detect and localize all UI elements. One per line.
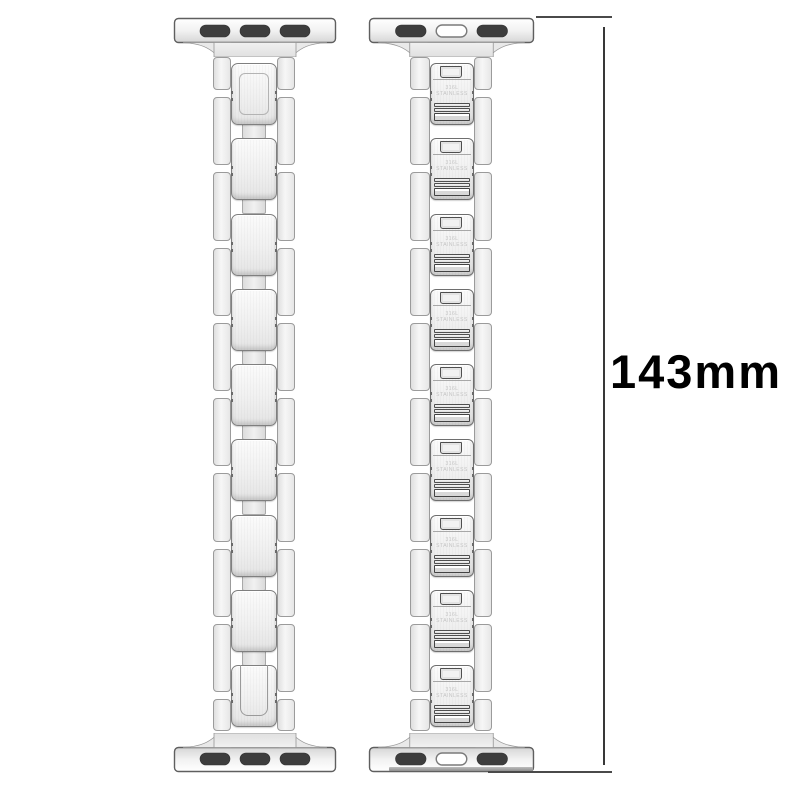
outer-link-right [277,699,295,731]
clasp-bar [434,715,470,723]
clasp-bar [434,484,470,488]
engraving-text: 316LSTAINLESS [431,612,473,624]
clasp-fold-line [433,606,471,607]
outer-link-left [213,549,231,617]
outer-link-right [474,398,492,466]
measurement-tick-top [536,16,612,18]
engraving-line-2: STAINLESS [431,693,473,699]
outer-link-left [213,473,231,542]
clasp-bar [434,409,470,413]
center-link-plate [231,515,277,577]
outer-link-right [474,549,492,617]
clasp-tab [440,141,462,153]
clasp-bar [434,254,470,258]
center-link-connector [242,575,266,591]
outer-link-right [277,323,295,391]
adapter-slot [240,753,270,765]
outer-link-right [277,549,295,617]
clasp-link-plate: 316LSTAINLESS [430,138,474,200]
clasp-tab [440,367,462,379]
clasp-bar [434,640,470,648]
engraving-line-2: STAINLESS [431,543,473,549]
adapter-slot [395,25,426,37]
engraving-text: 316LSTAINLESS [431,461,473,473]
center-link-plate [231,214,277,276]
adapter-slot [200,25,230,37]
engraving-line-2: STAINLESS [431,166,473,172]
clasp-fold-line [433,380,471,381]
outer-link-right [277,57,295,90]
engraving-text: 316LSTAINLESS [431,687,473,699]
outer-link-left [213,624,231,692]
center-link-connector [242,198,266,214]
clasp-bar [434,710,470,714]
outer-link-left [410,248,430,316]
clasp-bars [434,178,470,196]
clasp-link-plate: 316LSTAINLESS [430,364,474,426]
outer-link-left [410,97,430,165]
adapter-slot-open [436,753,467,765]
measurement-vertical-line [603,27,605,765]
outer-link-right [474,323,492,391]
outer-link-right [474,97,492,165]
center-link-plate [231,665,277,727]
outer-link-left [410,172,430,241]
center-link-connector [242,424,266,440]
clasp-fold-line [433,681,471,682]
engraving-text: 316LSTAINLESS [431,386,473,398]
center-link-connector [242,274,266,290]
clasp-link-plate: 316LSTAINLESS [430,214,474,276]
measurement-tick-bottom [488,771,612,773]
clasp-bar [434,334,470,338]
outer-link-right [277,624,295,692]
outer-link-left [410,323,430,391]
lug-adapter-graphic [173,733,337,773]
clasp-link-plate: 316LSTAINLESS [430,439,474,501]
outer-link-left [213,57,231,90]
clasp-bar [434,555,470,559]
clasp-bars [434,630,470,648]
watch-band-front-view [173,17,337,777]
center-link-plate [231,439,277,501]
dimension-label: 143mm [610,344,782,399]
clasp-bar [434,560,470,564]
clasp-link-plate: 316LSTAINLESS [430,515,474,577]
clasp-fold-line [433,79,471,80]
clasp-bar [434,339,470,347]
watch-adapter-bottom [173,733,337,773]
outer-link-right [474,473,492,542]
clasp-link-plate: 316LSTAINLESS [430,63,474,125]
clasp-bars [434,254,470,272]
engraving-text: 316LSTAINLESS [431,311,473,323]
center-link-connector [242,123,266,139]
engraving-line-2: STAINLESS [431,467,473,473]
outer-link-right [277,248,295,316]
clasp-bar [434,635,470,639]
outer-link-left [213,172,231,241]
adapter-slot [280,753,310,765]
outer-link-left [410,57,430,90]
clasp-bar [434,259,470,263]
outer-link-left [410,624,430,692]
clasp-bar [434,489,470,497]
watch-adapter-top [368,17,535,57]
adapter-slot [477,753,508,765]
clasp-tab [440,66,462,78]
outer-link-left [410,699,430,731]
outer-link-left [410,473,430,542]
engraving-line-2: STAINLESS [431,618,473,624]
outer-link-left [213,248,231,316]
engraving-line-2: STAINLESS [431,317,473,323]
outer-link-right [474,57,492,90]
outer-link-left [410,398,430,466]
center-link-plate [231,590,277,652]
clasp-bar [434,264,470,272]
clasp-bar [434,113,470,121]
engraving-text: 316LSTAINLESS [431,537,473,549]
outer-link-right [474,624,492,692]
clasp-link-plate: 316LSTAINLESS [430,289,474,351]
clasp-bar [434,479,470,483]
adapter-slot [240,25,270,37]
clasp-bars [434,705,470,723]
engraving-line-2: STAINLESS [431,242,473,248]
adapter-slot-open [436,25,467,37]
product-scene: 316LSTAINLESS316LSTAINLESS316LSTAINLESS3… [0,0,800,800]
watch-band-back-view: 316LSTAINLESS316LSTAINLESS316LSTAINLESS3… [368,17,535,777]
clasp-fold-line [433,154,471,155]
clasp-link-plate: 316LSTAINLESS [430,665,474,727]
lug-adapter-graphic [173,17,337,57]
outer-link-right [474,699,492,731]
outer-link-right [277,97,295,165]
clasp-bars [434,103,470,121]
clasp-fold-line [433,305,471,306]
outer-link-left [213,97,231,165]
center-link-connector [242,499,266,515]
engraving-text: 316LSTAINLESS [431,85,473,97]
clasp-bar [434,183,470,187]
lug-adapter-graphic [368,17,535,57]
watch-adapter-top [173,17,337,57]
center-link-plate [231,289,277,351]
outer-link-left [213,398,231,466]
clasp-bar [434,404,470,408]
clasp-bar [434,178,470,182]
center-link-plate [231,364,277,426]
engraving-text: 316LSTAINLESS [431,236,473,248]
outer-link-right [277,473,295,542]
clasp-bar [434,108,470,112]
clasp-bar [434,414,470,422]
clasp-bars [434,404,470,422]
center-link-connector [242,650,266,666]
clasp-tab [440,668,462,680]
clasp-bars [434,555,470,573]
outer-link-left [213,323,231,391]
clasp-fold-line [433,531,471,532]
outer-link-right [277,172,295,241]
clasp-bar [434,705,470,709]
clasp-bars [434,479,470,497]
clasp-bar [434,329,470,333]
outer-link-right [474,248,492,316]
end-link-channel-outline [240,665,268,716]
clasp-tab [440,292,462,304]
clasp-link-plate: 316LSTAINLESS [430,590,474,652]
engraving-text: 316LSTAINLESS [431,160,473,172]
center-link-plate [231,63,277,125]
engraving-line-2: STAINLESS [431,91,473,97]
clasp-bar [434,565,470,573]
clasp-tab [440,442,462,454]
clasp-bar [434,188,470,196]
center-link-connector [242,349,266,365]
outer-link-right [474,172,492,241]
clasp-bars [434,329,470,347]
clasp-fold-line [433,230,471,231]
clasp-tab [440,518,462,530]
adapter-slot [395,753,426,765]
engraving-line-2: STAINLESS [431,392,473,398]
clasp-tab [440,217,462,229]
adapter-slot [477,25,508,37]
center-link-plate [231,138,277,200]
clasp-bar [434,630,470,634]
clasp-fold-line [433,455,471,456]
outer-link-right [277,398,295,466]
spring-bar-housing-outline [239,73,269,115]
clasp-tab [440,593,462,605]
outer-link-left [410,549,430,617]
clasp-bar [434,103,470,107]
outer-link-left [213,699,231,731]
adapter-slot [200,753,230,765]
adapter-slot [280,25,310,37]
